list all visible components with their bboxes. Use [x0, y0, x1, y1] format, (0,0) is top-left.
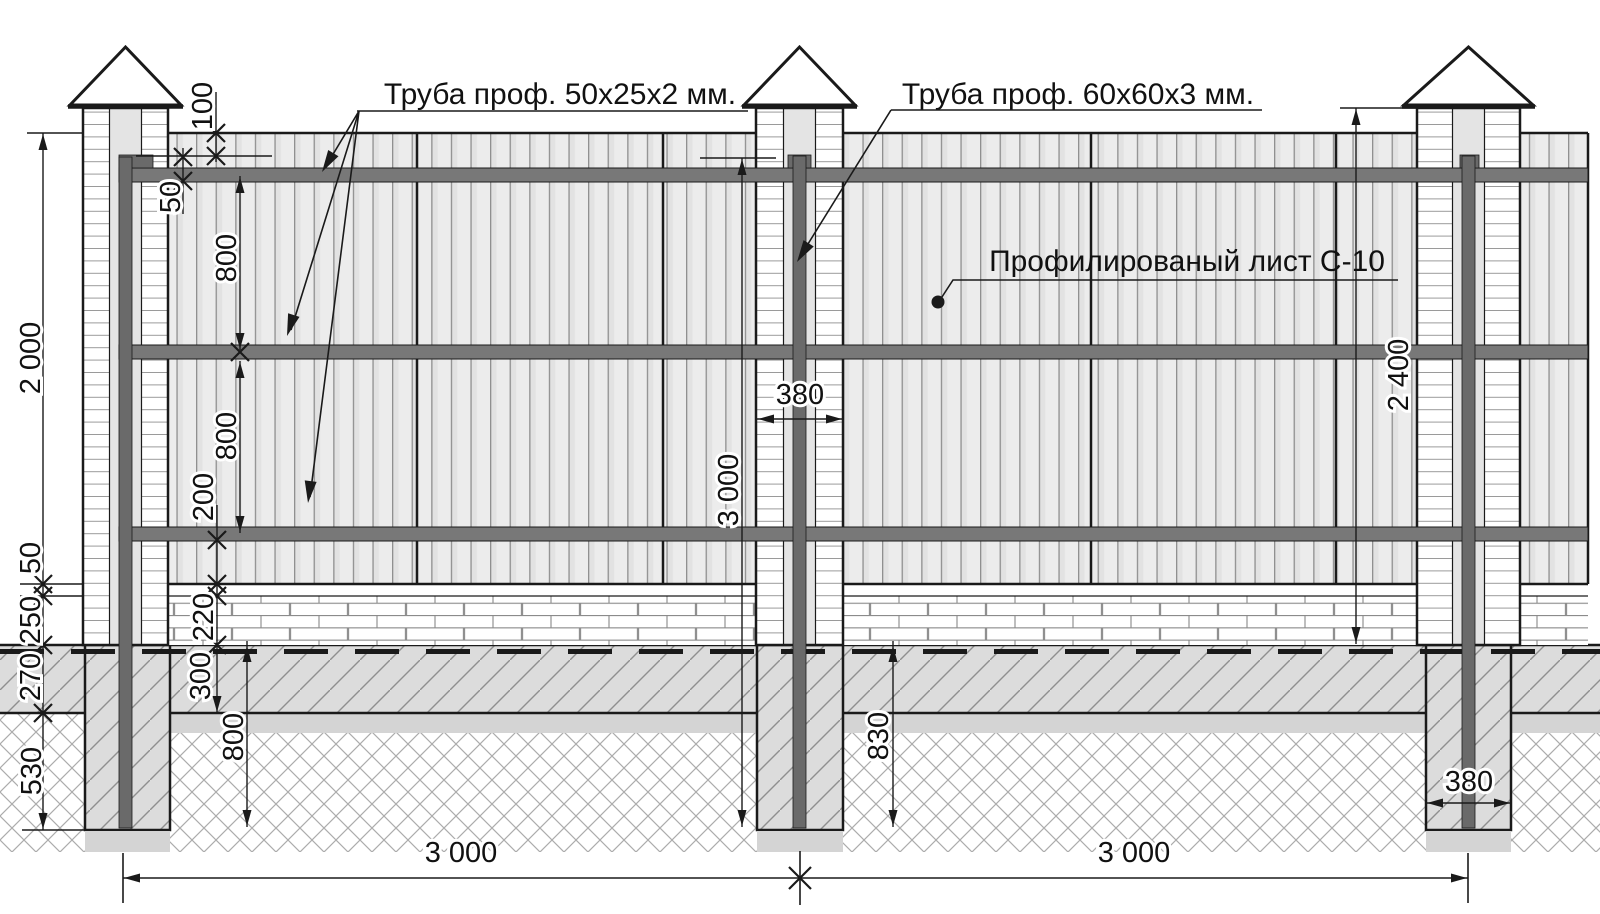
dim-pillar-380: 380 [776, 379, 824, 411]
pillar-cap [744, 47, 855, 105]
dim-bay-800-lower: 800 [211, 412, 243, 460]
fence-panels [168, 133, 1588, 645]
dim-plinth-220: 220 [188, 593, 220, 641]
callout-sheet-label: Профилированый лист С-10 [989, 245, 1385, 278]
dim-depth-530: 530 [16, 747, 48, 795]
dim-rail-50: 50 [155, 181, 187, 213]
brick-plinth [168, 596, 756, 645]
strip-footing [843, 713, 1426, 733]
pier-pad [1426, 831, 1511, 852]
dim-embed-300: 300 [185, 652, 217, 700]
pier-pad [757, 831, 843, 852]
dim-soil-270: 270 [15, 653, 47, 701]
middle-rail [119, 345, 1588, 359]
dim-pier-830: 830 [863, 712, 895, 760]
dim-height-2000: 2 000 [15, 322, 47, 395]
dim-top-100: 100 [187, 82, 219, 130]
dim-pier-380: 380 [1445, 766, 1493, 798]
fence-drawing: 2 000 50 250 270 530 100 50 800 800 200 … [0, 0, 1600, 914]
plinth-cap [843, 584, 1417, 596]
fence-panel [843, 133, 1417, 645]
plinth-cap [168, 584, 756, 596]
dim-gap-50: 50 [15, 542, 47, 574]
dim-post-3000: 3 000 [713, 454, 745, 527]
strip-footing [1511, 713, 1600, 733]
callout-rail-tube-label: Труба проф. 50х25х2 мм. [384, 78, 736, 111]
fence-post-right [1462, 156, 1475, 828]
pier-pad [85, 831, 170, 852]
plinth-cap [1520, 584, 1588, 596]
callout-dot [932, 296, 945, 309]
dim-pier-800: 800 [218, 713, 250, 761]
fence-panel [1520, 133, 1588, 645]
dim-base-250: 250 [15, 596, 47, 644]
pillar-cap [1404, 47, 1533, 105]
dim-pillar-2400: 2 400 [1383, 339, 1415, 412]
callout-post-tube-label: Труба проф. 60х60х3 мм. [902, 78, 1254, 111]
fence-panel [168, 133, 756, 645]
brick-plinth [1520, 596, 1588, 645]
dim-bottom-200: 200 [188, 473, 220, 521]
pillar-cap [70, 47, 181, 105]
bottom-rail [119, 527, 1588, 541]
dim-span-right: 3 000 [1098, 837, 1171, 869]
strip-footing [170, 713, 757, 733]
brick-plinth [843, 596, 1417, 645]
fence-post-left [119, 157, 132, 828]
dim-span-left: 3 000 [425, 837, 498, 869]
dim-bay-800-upper: 800 [211, 234, 243, 282]
